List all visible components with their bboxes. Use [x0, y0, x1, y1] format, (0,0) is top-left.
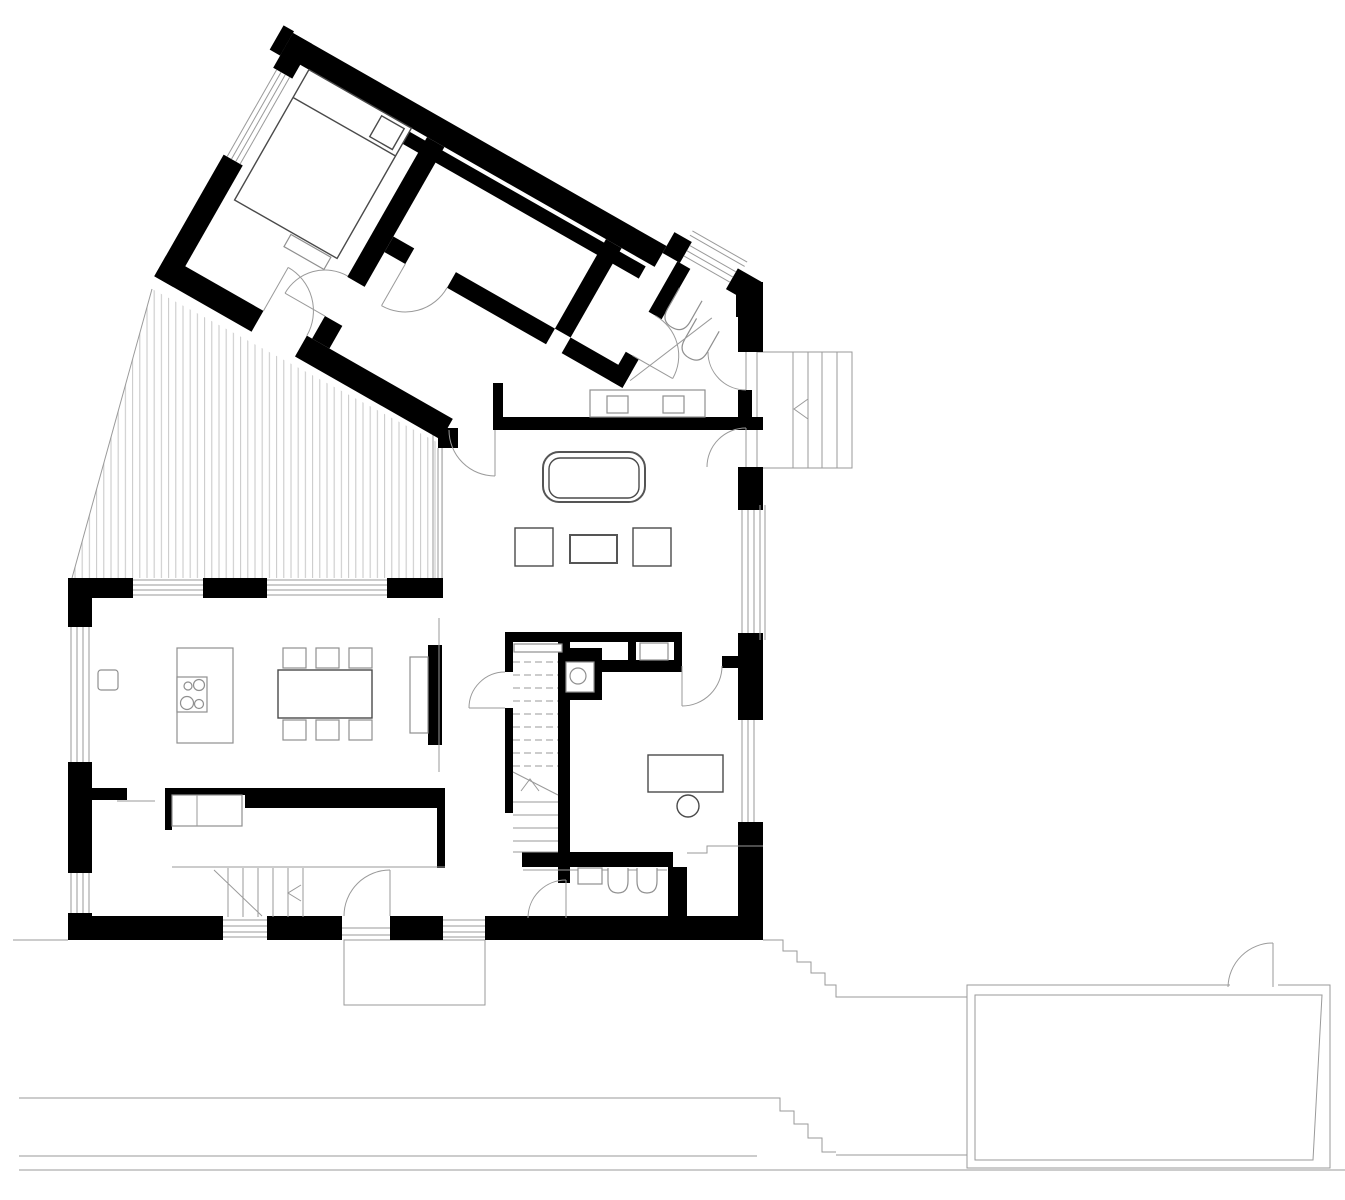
deck-hatching	[72, 289, 444, 578]
floor-plan-drawing	[0, 0, 1345, 1200]
dining-table	[278, 670, 372, 718]
south-door-threshold	[342, 928, 390, 935]
entry-door-lower	[707, 428, 746, 467]
door-dining-stairhall	[469, 672, 505, 708]
window-east-living	[742, 505, 765, 640]
cellar-steps-mudroom	[172, 867, 445, 917]
coffee-table	[633, 528, 671, 566]
door-room-2	[382, 264, 447, 329]
dining-chair	[349, 648, 372, 668]
wash-basin	[608, 868, 628, 893]
pantry-cupboard	[172, 795, 242, 826]
floor-plan-canvas	[0, 0, 1345, 1200]
entry-landing-slab	[757, 352, 852, 468]
wall-appliance	[98, 670, 118, 690]
south-stoop-slab	[344, 940, 485, 1005]
wc-basin	[570, 668, 586, 684]
dining-chair	[349, 720, 372, 740]
window-kitchen-terrace-1	[133, 580, 203, 595]
sideboard-drawer	[663, 396, 684, 413]
stair-break-line	[513, 772, 558, 795]
window-east-study	[742, 720, 754, 822]
up-direction-chevron	[794, 399, 808, 419]
garden-steps-lower	[19, 1098, 836, 1152]
window-south-pantry	[223, 920, 267, 937]
door-study	[682, 666, 722, 706]
wood-deck-terrace	[72, 289, 444, 578]
door-south-mudroom	[344, 870, 390, 916]
sideboard-drawer	[607, 396, 628, 413]
door-bathroom	[528, 880, 566, 918]
burner	[195, 700, 204, 709]
entry-hall-furniture	[590, 390, 705, 417]
entry-door-upper	[708, 352, 746, 390]
garden-steps-upper	[763, 940, 967, 997]
window-south-stair	[443, 920, 485, 937]
dining-chair	[316, 720, 339, 740]
burner	[194, 680, 205, 691]
pool-basin	[975, 995, 1322, 1160]
pool	[967, 943, 1330, 1168]
window-west-dining	[71, 627, 89, 762]
washer-appliance	[640, 643, 668, 660]
living-room-furniture	[515, 452, 671, 566]
desk	[648, 755, 723, 792]
down-direction-chevron	[288, 885, 301, 901]
pool-deck-outline	[967, 985, 1330, 1168]
window-west-mudroom	[71, 873, 89, 913]
main-staircase	[513, 662, 558, 852]
wash-basin	[637, 868, 657, 893]
entry-landing	[757, 352, 852, 468]
coffee-table	[570, 535, 617, 563]
step-break-line	[214, 870, 262, 916]
sofa-inner-line	[549, 458, 639, 498]
stair-top-cupboard	[514, 644, 562, 652]
dining-chair	[283, 720, 306, 740]
dining-chair	[283, 648, 306, 668]
burner	[184, 682, 192, 690]
dining-chair	[316, 648, 339, 668]
coffee-table	[515, 528, 553, 566]
window-kitchen-terrace-2	[267, 580, 387, 595]
pool-gate-swing	[1228, 943, 1273, 987]
desk-chair	[677, 795, 699, 817]
bath-cabinet	[578, 868, 602, 884]
sideboard-dining	[410, 657, 428, 733]
burner	[181, 697, 194, 710]
